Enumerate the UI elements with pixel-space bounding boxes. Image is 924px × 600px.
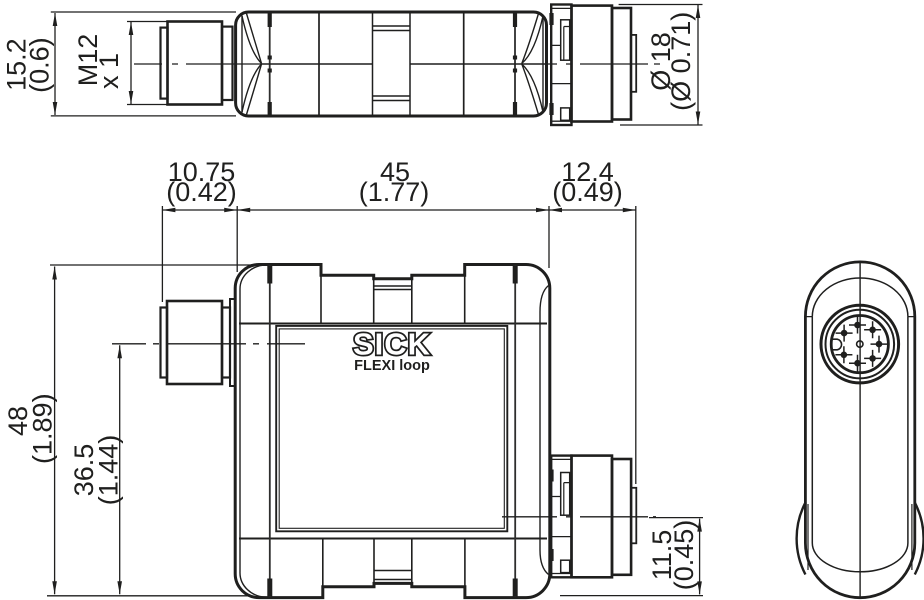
svg-text:x 1: x 1: [94, 53, 124, 89]
svg-text:(1.89): (1.89): [28, 393, 58, 464]
svg-text:(0.6): (0.6): [25, 37, 55, 93]
svg-text:(Ø 0.71): (Ø 0.71): [666, 12, 696, 111]
svg-text:FLEXI loop: FLEXI loop: [354, 358, 430, 374]
svg-text:(1.77): (1.77): [359, 177, 430, 207]
svg-text:SICK: SICK: [353, 327, 431, 362]
svg-text:(0.49): (0.49): [552, 177, 623, 207]
svg-text:(0.45): (0.45): [669, 520, 699, 591]
svg-text:(1.44): (1.44): [94, 435, 124, 506]
svg-text:(0.42): (0.42): [166, 177, 237, 207]
